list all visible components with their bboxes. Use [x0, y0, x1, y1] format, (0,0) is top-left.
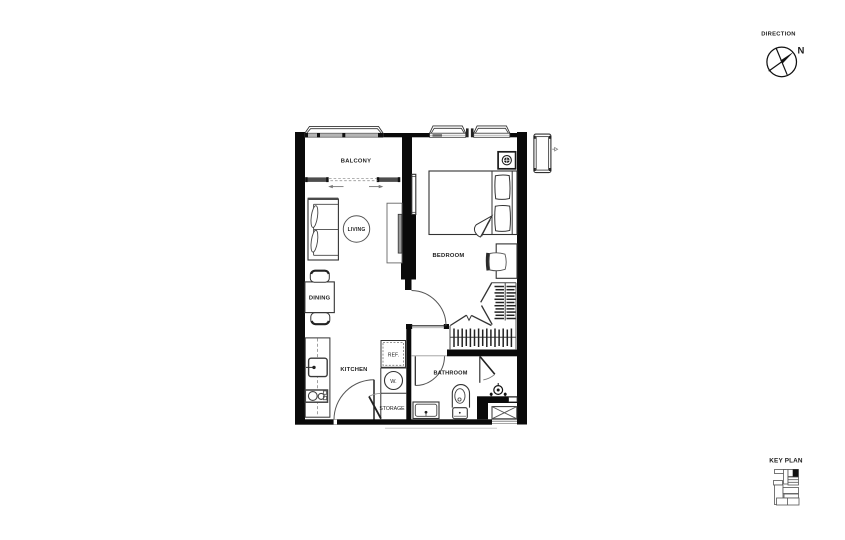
- svg-text:KEY PLAN: KEY PLAN: [769, 458, 803, 465]
- svg-text:BATHROOM: BATHROOM: [433, 371, 467, 377]
- svg-text:W.: W.: [390, 379, 397, 385]
- svg-text:KITCHEN: KITCHEN: [340, 367, 367, 373]
- svg-text:BEDROOM: BEDROOM: [432, 253, 464, 259]
- svg-text:STORAGE: STORAGE: [379, 406, 405, 412]
- svg-text:N: N: [797, 46, 804, 57]
- svg-text:DINING: DINING: [309, 296, 331, 302]
- svg-text:REF.: REF.: [388, 352, 399, 358]
- svg-text:DIRECTION: DIRECTION: [761, 32, 796, 38]
- svg-text:LIVING: LIVING: [348, 227, 366, 233]
- svg-text:BALCONY: BALCONY: [341, 158, 371, 164]
